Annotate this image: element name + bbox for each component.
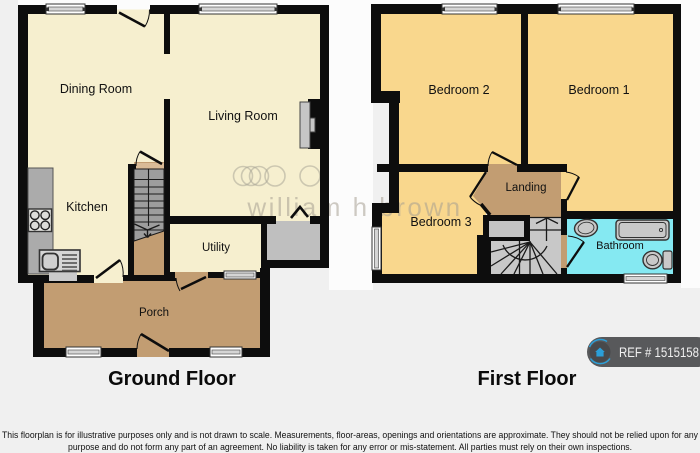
svg-text:Landing: Landing bbox=[506, 182, 547, 194]
svg-text:Dining Room: Dining Room bbox=[60, 82, 132, 96]
svg-text:Living Room: Living Room bbox=[208, 109, 277, 123]
svg-text:This floorplan is for illustra: This floorplan is for illustrative purpo… bbox=[2, 430, 698, 440]
svg-text:Bathroom: Bathroom bbox=[596, 240, 644, 252]
svg-text:purpose and do not form any pa: purpose and do not form any part of an a… bbox=[68, 442, 632, 452]
svg-text:Utility: Utility bbox=[202, 242, 230, 254]
svg-text:Ground Floor: Ground Floor bbox=[108, 368, 236, 390]
svg-text:Bedroom 2: Bedroom 2 bbox=[428, 83, 489, 97]
svg-text:Porch: Porch bbox=[139, 307, 169, 319]
svg-text:Bedroom 3: Bedroom 3 bbox=[410, 215, 471, 229]
svg-text:REF # 1515158: REF # 1515158 bbox=[619, 344, 699, 360]
svg-text:Kitchen: Kitchen bbox=[66, 200, 108, 214]
svg-text:First Floor: First Floor bbox=[478, 368, 577, 390]
svg-text:Bedroom 1: Bedroom 1 bbox=[568, 83, 629, 97]
